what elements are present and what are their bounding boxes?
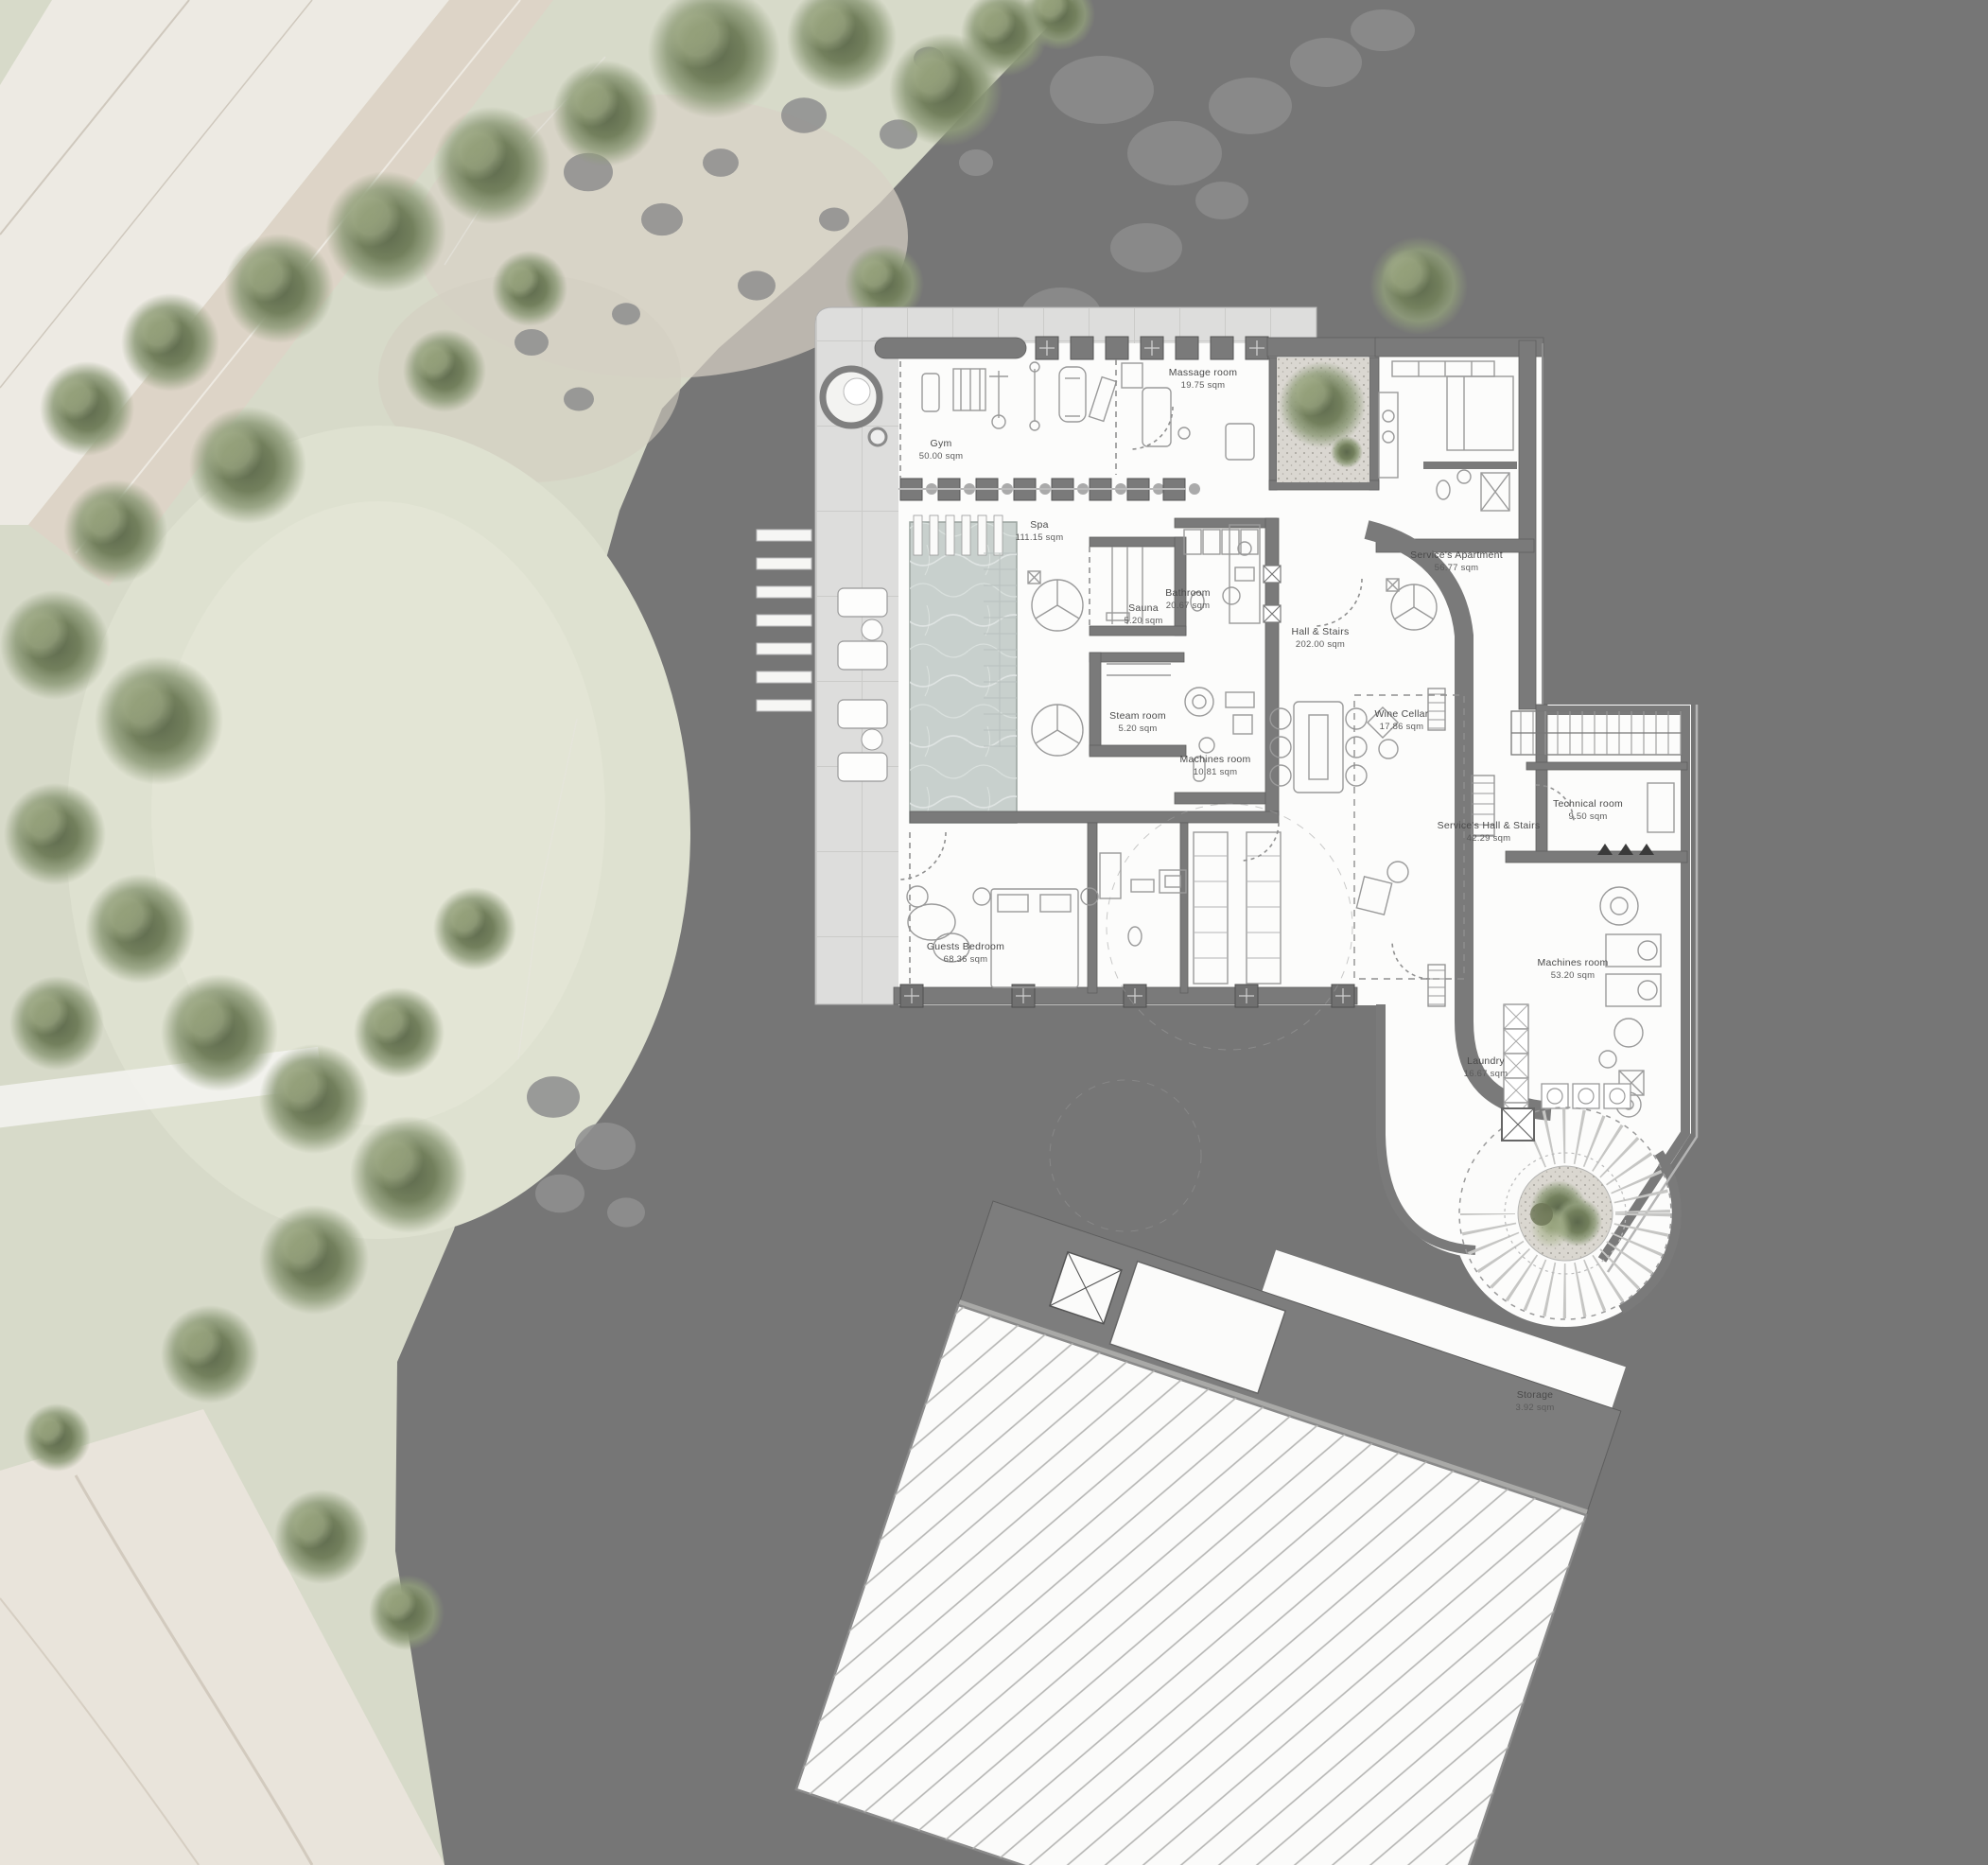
washing-machines <box>1542 1084 1631 1108</box>
swimming-pool <box>910 515 1017 823</box>
side-table <box>862 729 882 750</box>
deck-steps <box>757 530 811 711</box>
top-columns <box>1036 337 1268 359</box>
site-plan-page: Gym50.00 sqmMassage room19.75 sqmSpa111.… <box>0 0 1988 1865</box>
valve-symbols <box>1597 844 1654 855</box>
spiral-staircase <box>1459 1107 1671 1319</box>
site-plan-drawing <box>0 0 1988 1865</box>
elevator <box>1502 1108 1534 1141</box>
side-table <box>862 619 882 640</box>
courtyard <box>1277 357 1369 482</box>
